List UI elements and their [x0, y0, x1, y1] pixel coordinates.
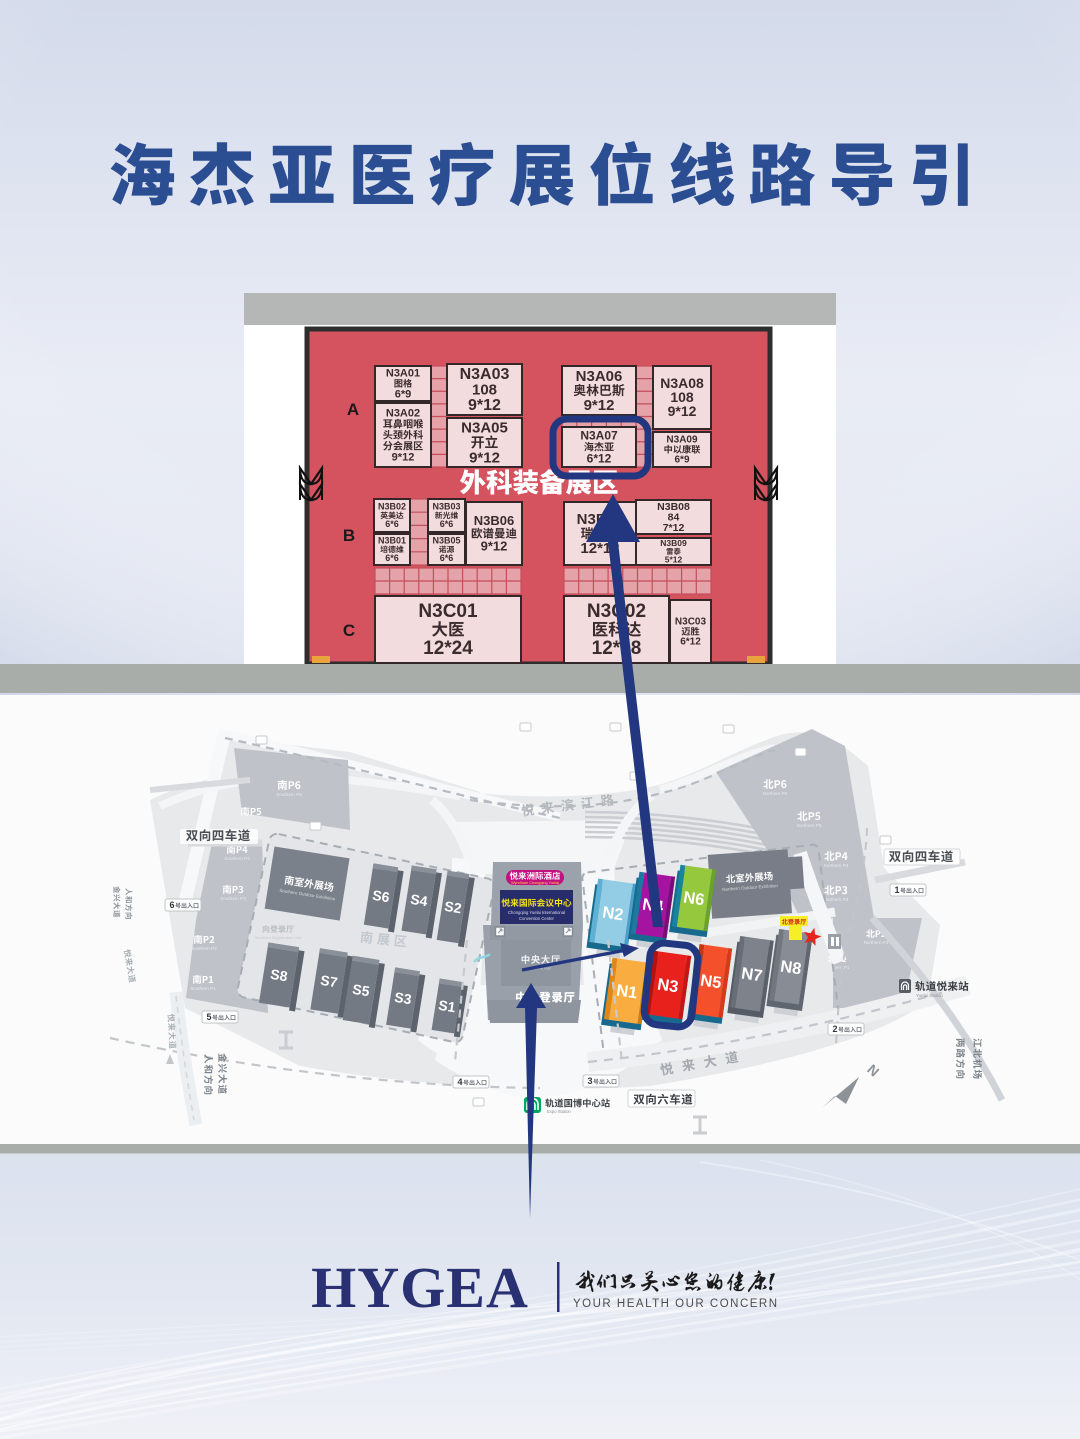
svg-text:N3C03: N3C03	[675, 617, 707, 628]
svg-text:N3B01: N3B01	[378, 536, 406, 546]
svg-text:12*24: 12*24	[423, 638, 473, 659]
svg-text:Southern P1: Southern P1	[190, 986, 216, 991]
svg-text:N6: N6	[682, 889, 705, 910]
svg-text:3: 3	[587, 1076, 592, 1086]
svg-text:N3A07: N3A07	[580, 428, 618, 442]
svg-text:9*12: 9*12	[469, 449, 500, 466]
svg-text:HYGEA: HYGEA	[311, 1255, 529, 1320]
svg-text:6*12: 6*12	[680, 637, 701, 648]
svg-text:N3A05: N3A05	[461, 419, 508, 436]
svg-text:9*12: 9*12	[481, 538, 508, 553]
svg-text:S3: S3	[393, 989, 413, 1008]
svg-text:S6: S6	[371, 887, 391, 906]
svg-text:YOUR HEALTH OUR CONCERN: YOUR HEALTH OUR CONCERN	[573, 1298, 779, 1310]
svg-text:Southern Registration Hall: Southern Registration Hall	[255, 935, 302, 940]
svg-text:N3A01: N3A01	[386, 368, 420, 380]
svg-text:Yuelai Station: Yuelai Station	[916, 993, 943, 998]
svg-text:6*6: 6*6	[385, 553, 399, 563]
svg-text:N3B03: N3B03	[432, 502, 460, 512]
svg-text:Wyndham Chongqing Yuelai: Wyndham Chongqing Yuelai	[511, 881, 559, 885]
svg-text:S4: S4	[409, 891, 429, 910]
svg-text:N3B05: N3B05	[432, 536, 460, 546]
svg-text:Northern P2: Northern P2	[864, 940, 889, 945]
svg-text:5*12: 5*12	[665, 554, 683, 564]
svg-text:9*12: 9*12	[392, 452, 415, 464]
svg-text:S2: S2	[443, 898, 463, 917]
svg-text:1: 1	[894, 885, 899, 895]
svg-text:Northern P5: Northern P5	[797, 823, 822, 828]
svg-text:S5: S5	[351, 981, 371, 1000]
svg-text:Northern P3: Northern P3	[824, 897, 849, 902]
svg-text:Northern P1: Northern P1	[825, 965, 850, 970]
svg-text:N8: N8	[779, 958, 802, 979]
svg-text:6: 6	[169, 900, 174, 910]
svg-text:Chongqing Yuelai International: Chongqing Yuelai International	[508, 910, 565, 915]
svg-text:6*6: 6*6	[385, 519, 399, 529]
svg-text:9*12: 9*12	[668, 403, 697, 419]
svg-text:N2: N2	[601, 904, 624, 925]
svg-text:Southern P6: Southern P6	[276, 792, 302, 797]
svg-text:C: C	[343, 621, 355, 640]
svg-text:Southern P4: Southern P4	[224, 856, 250, 861]
svg-text:6*6: 6*6	[440, 519, 454, 529]
svg-text:Expo Station: Expo Station	[547, 1109, 571, 1114]
svg-text:N3C01: N3C01	[418, 601, 478, 622]
svg-text:2: 2	[832, 1024, 837, 1034]
svg-text:N3: N3	[656, 976, 679, 997]
svg-text:S7: S7	[319, 972, 339, 991]
svg-text:9*12: 9*12	[468, 397, 501, 414]
svg-text:N3B09: N3B09	[660, 538, 687, 548]
svg-text:A: A	[347, 400, 359, 419]
svg-text:Southern P2: Southern P2	[191, 946, 217, 951]
svg-text:5: 5	[206, 1012, 211, 1022]
svg-text:6*9: 6*9	[395, 389, 412, 401]
svg-text:9*12: 9*12	[584, 397, 615, 414]
svg-text:S1: S1	[437, 997, 457, 1016]
svg-text:Southern P3: Southern P3	[220, 896, 246, 901]
svg-text:B: B	[343, 526, 355, 545]
svg-text:12*18: 12*18	[592, 638, 642, 659]
svg-text:N3B06: N3B06	[474, 513, 514, 528]
svg-text:S8: S8	[269, 966, 289, 985]
svg-text:Northern P6: Northern P6	[763, 791, 788, 796]
svg-text:N3A02: N3A02	[386, 408, 420, 420]
svg-text:6*12: 6*12	[587, 451, 612, 465]
svg-text:N5: N5	[699, 972, 722, 993]
svg-text:N1: N1	[615, 982, 638, 1003]
svg-text:108: 108	[472, 381, 497, 398]
svg-text:Convention Center: Convention Center	[519, 916, 555, 921]
svg-text:N3B02: N3B02	[378, 502, 406, 512]
svg-text:6*6: 6*6	[440, 553, 454, 563]
svg-text:6*9: 6*9	[674, 455, 689, 466]
svg-text:N3A09: N3A09	[666, 435, 698, 446]
svg-text:Northern P4: Northern P4	[824, 863, 849, 868]
svg-text:4: 4	[457, 1077, 462, 1087]
svg-text:Southern P5: Southern P5	[238, 818, 264, 823]
svg-text:7*12: 7*12	[663, 522, 685, 534]
svg-text:N3A06: N3A06	[576, 368, 623, 385]
svg-text:N7: N7	[740, 965, 763, 986]
